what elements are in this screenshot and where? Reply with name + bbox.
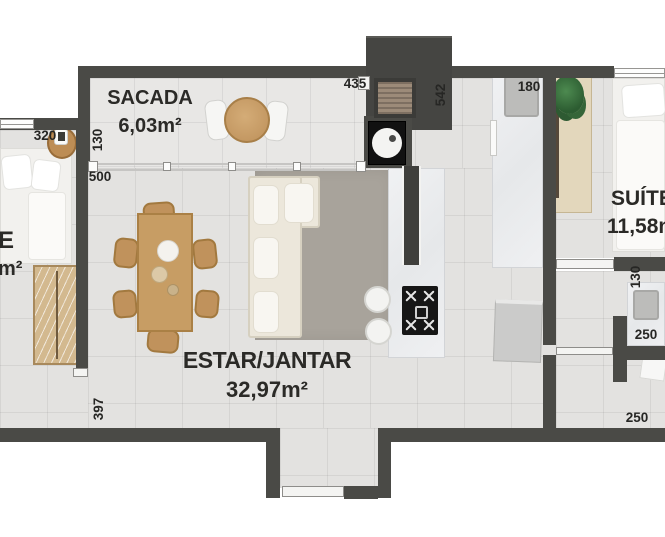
cooktop-knob [415,306,428,319]
lamp-shade [58,132,65,141]
dim-435: 435 [341,76,369,90]
wall-bottom-left [0,428,280,442]
bath-door [556,347,613,355]
suite-door [556,259,614,269]
room-area-sacada: 6,03m² [105,115,195,138]
burner-icon [422,289,436,303]
dim-250-bottom: 250 [621,410,653,425]
wall-entry-left [266,428,280,498]
room-area-left-partial: m² [0,258,22,281]
dining-chair [191,238,218,270]
burner-icon [404,318,418,332]
faucet [490,120,497,156]
sliding-door-post [356,161,366,172]
dining-chair [112,289,138,319]
wall-balcony-top [78,66,368,78]
wall-divider-lower [543,355,556,428]
wall-bath-cross-h [627,346,665,360]
dining-chair [112,237,139,269]
wall-top-right [452,66,614,78]
wall-bath-cross-v [613,316,627,382]
shaft-vent [374,78,416,118]
entry-floor [280,428,378,488]
wardrobe [33,265,78,365]
sofa-cushion [253,291,279,333]
wardrobe-rail [56,271,58,359]
table-decor [167,284,179,296]
bedroom-window [0,119,34,129]
floor-plan: SACADA 6,03m² ESTAR/JANTAR 32,97m² SUÍTE… [0,0,665,537]
sliding-door-post [228,162,236,171]
wall-balcony-left [78,66,90,168]
bar-stool [365,318,392,345]
room-label-sacada: SACADA [100,87,200,110]
dim-130-left: 130 [90,125,104,155]
suite-bed-pillow [621,83,665,119]
room-label-suite: SUÍTE [611,187,665,211]
washer-drum [372,128,402,158]
bed-left-duvet [28,192,66,260]
sofa-cushion [253,237,279,279]
wall-entry-stub [344,486,378,499]
burner-icon [422,318,436,332]
plant [553,76,584,114]
tall-cabinet [402,166,421,265]
washer-dot [389,135,396,142]
table-decor [157,240,179,262]
dim-542: 542 [433,80,447,110]
bath-sink [633,290,659,320]
sofa-cushion [253,185,279,225]
refrigerator [493,299,543,363]
burner-icon [404,289,418,303]
bedroom-door-jamb [73,368,88,377]
entry-door [282,486,344,497]
desk-edge [556,98,559,198]
room-area-estar-jantar: 32,97m² [178,377,356,403]
bar-stool [364,286,391,313]
dim-320: 320 [31,128,59,142]
cooktop [402,286,438,335]
dim-180: 180 [515,79,543,93]
table-decor [151,266,168,283]
bed-left-pillow [0,154,33,191]
bed-left-pillow [30,158,62,192]
dim-250-mid: 250 [630,327,662,342]
room-area-suite: 11,58m² [607,215,665,239]
wall-bottom-right [378,428,665,442]
dim-500: 500 [85,169,115,183]
wall-kitchen-suite-divider [543,66,556,345]
sofa-cushion [284,183,314,223]
sliding-door-post [163,162,171,171]
wall-entry-right [378,428,391,498]
sliding-door-post [293,162,301,171]
suite-window [614,68,665,78]
dining-chair [194,289,220,319]
room-label-estar-jantar: ESTAR/JANTAR [178,347,356,374]
balcony-table [224,97,270,143]
dim-130-right: 130 [628,262,642,292]
dim-397: 397 [91,394,105,424]
room-label-left-partial: E [0,227,14,255]
